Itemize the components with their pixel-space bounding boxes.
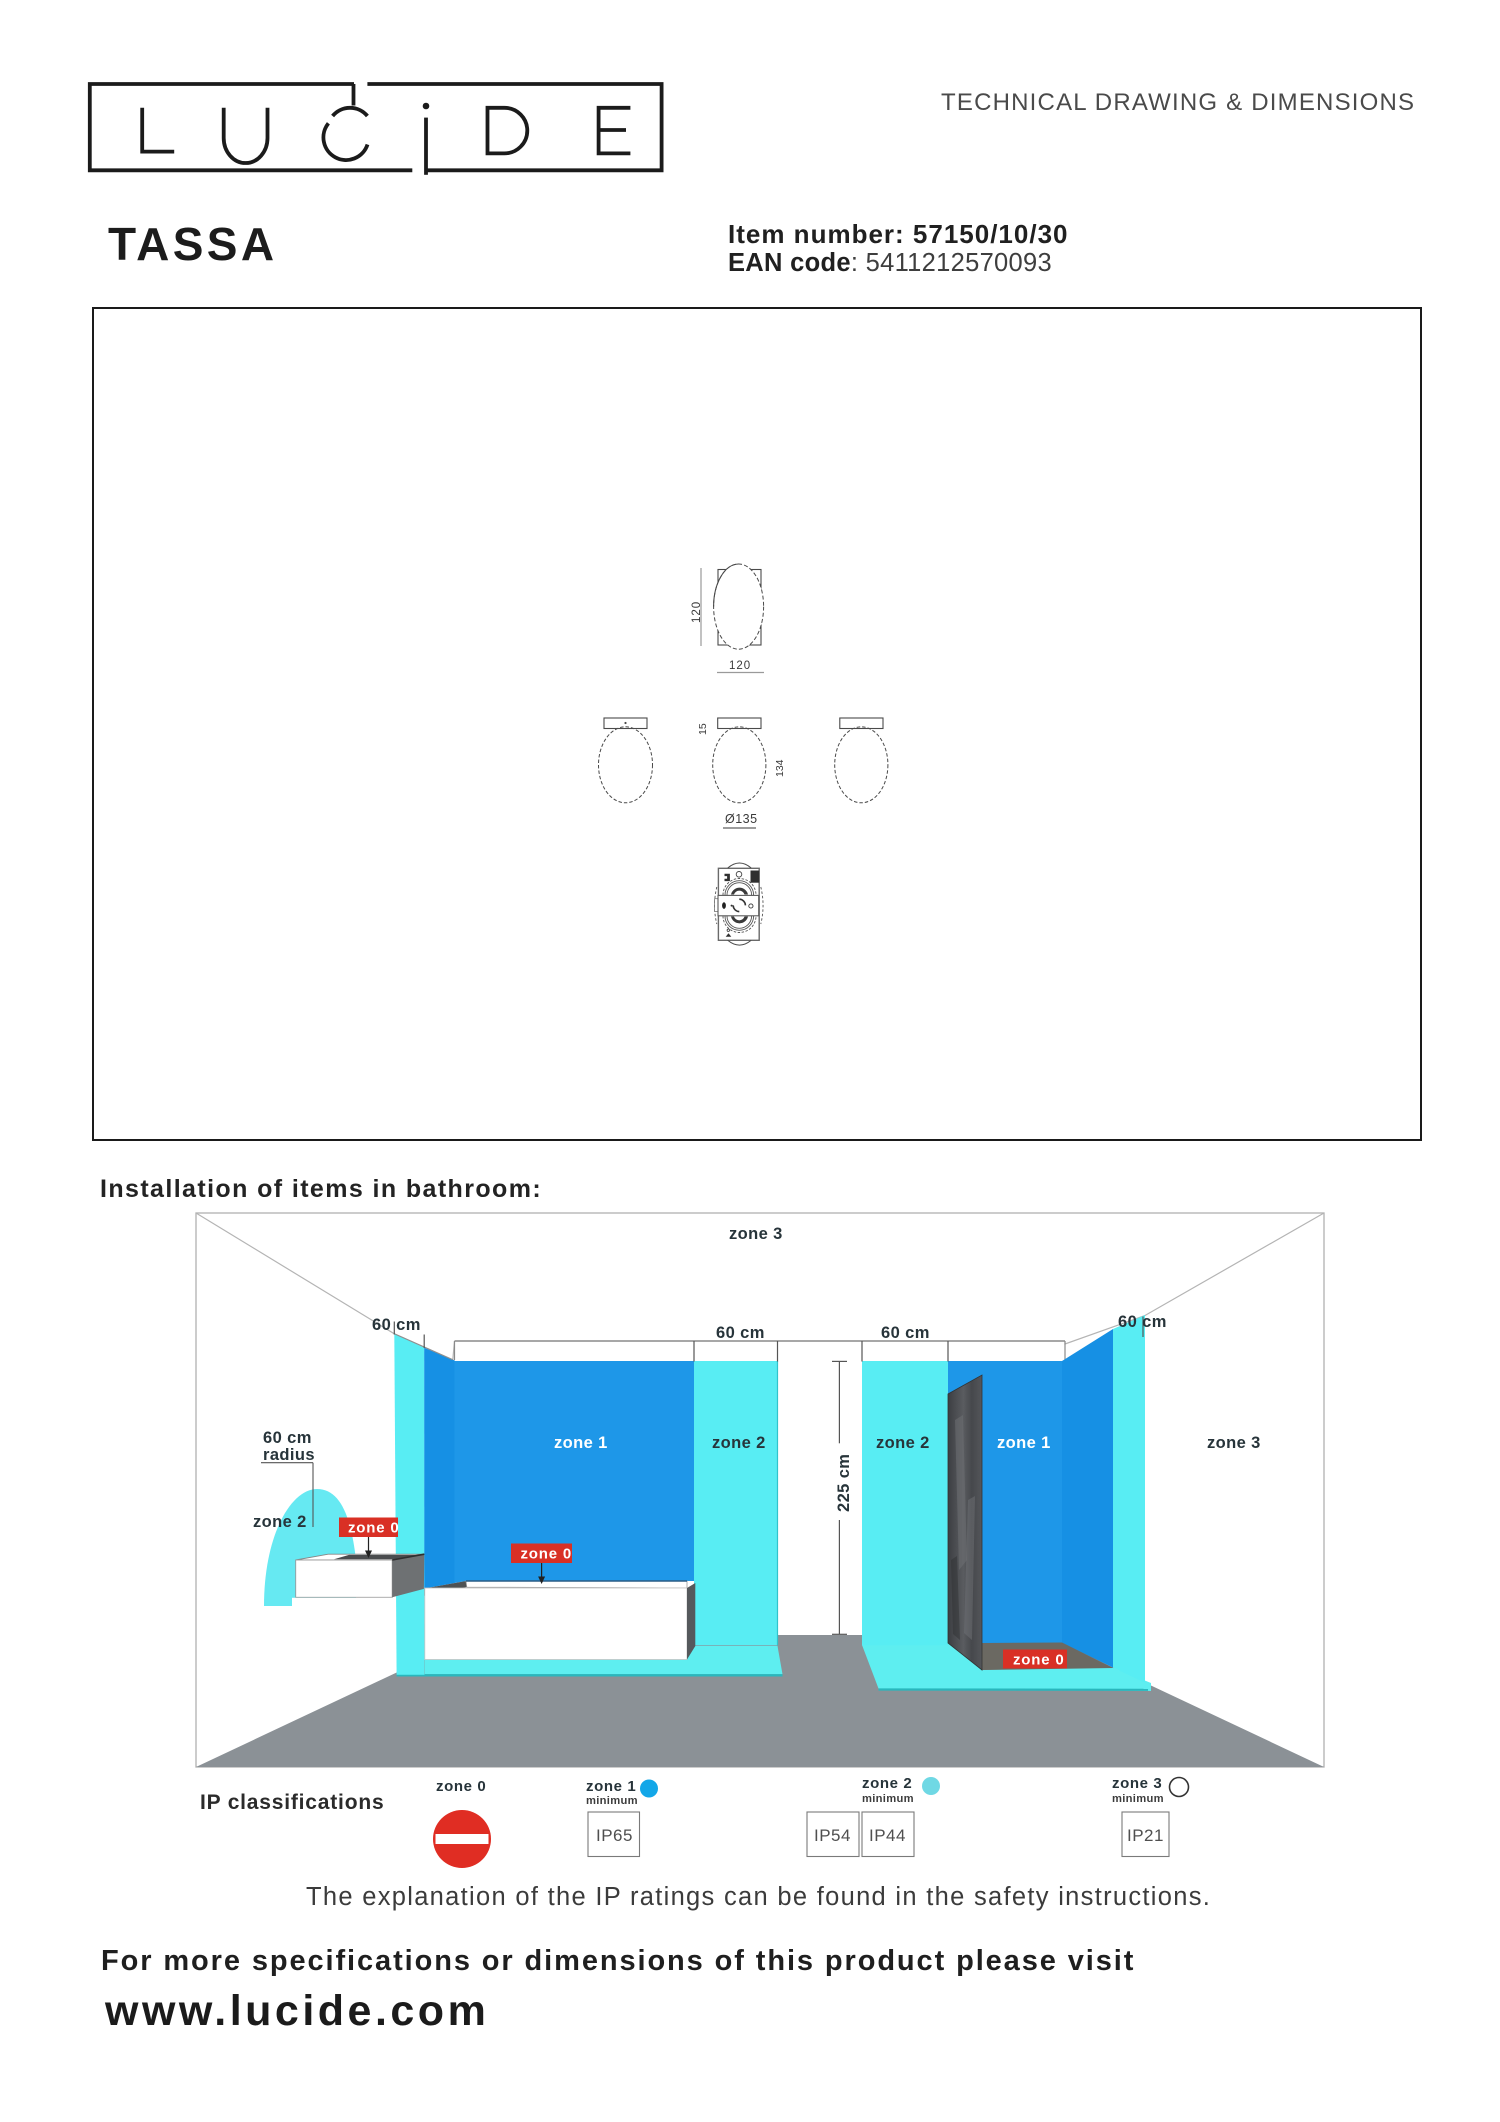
svg-text:zone 1: zone 1: [997, 1434, 1051, 1452]
svg-text:60 cm: 60 cm: [1118, 1313, 1167, 1331]
svg-text:zone 0: zone 0: [348, 1520, 399, 1537]
svg-text:IP44: IP44: [869, 1826, 906, 1845]
svg-text:minimum: minimum: [1112, 1793, 1164, 1805]
svg-text:zone 0: zone 0: [521, 1546, 572, 1563]
svg-text:minimum: minimum: [586, 1795, 638, 1807]
svg-text:minimum: minimum: [862, 1793, 914, 1805]
svg-text:radius: radius: [263, 1446, 315, 1464]
svg-text:60 cm: 60 cm: [881, 1324, 930, 1342]
svg-text:60 cm: 60 cm: [716, 1324, 765, 1342]
svg-text:zone 2: zone 2: [712, 1434, 766, 1452]
svg-text:zone 1: zone 1: [554, 1434, 608, 1452]
svg-text:IP21: IP21: [1127, 1826, 1164, 1845]
svg-text:225 cm: 225 cm: [835, 1454, 853, 1512]
svg-text:60 cm: 60 cm: [263, 1429, 312, 1447]
svg-text:zone 3: zone 3: [729, 1225, 783, 1243]
svg-text:zone 3: zone 3: [1112, 1775, 1162, 1792]
svg-text:IP classifications: IP classifications: [200, 1791, 384, 1814]
svg-text:zone 1: zone 1: [586, 1778, 636, 1795]
svg-text:zone 3: zone 3: [1207, 1434, 1261, 1452]
svg-text:zone 2: zone 2: [253, 1513, 307, 1531]
svg-text:zone 0: zone 0: [1013, 1652, 1064, 1669]
svg-text:zone 0: zone 0: [436, 1778, 486, 1795]
svg-text:zone 2: zone 2: [862, 1775, 912, 1792]
svg-text:60 cm: 60 cm: [372, 1316, 421, 1334]
svg-text:IP54: IP54: [814, 1826, 851, 1845]
svg-text:IP65: IP65: [596, 1826, 633, 1845]
svg-text:zone 2: zone 2: [876, 1434, 930, 1452]
